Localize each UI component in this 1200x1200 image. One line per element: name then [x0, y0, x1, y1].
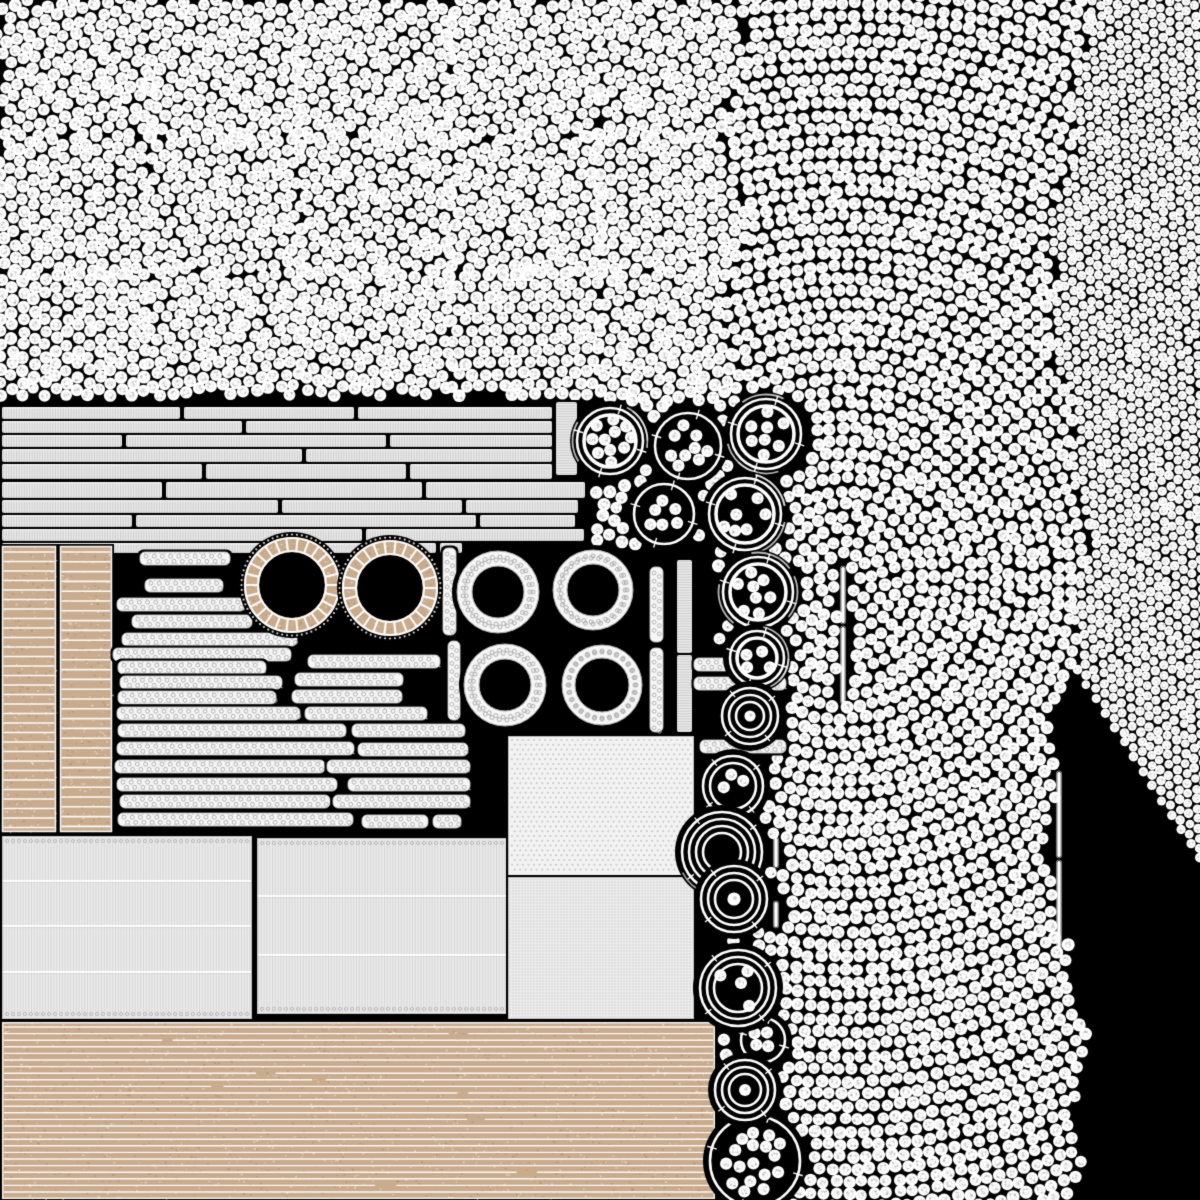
cross-section-canvas: [0, 0, 1200, 1200]
packed-cylinders-cross-section-scan: [0, 0, 1200, 1200]
